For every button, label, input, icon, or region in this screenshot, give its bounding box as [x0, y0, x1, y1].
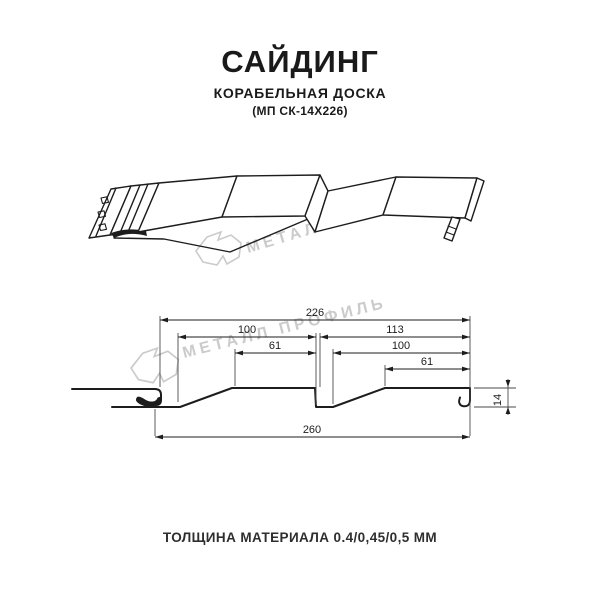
dim-pitch-right: 113	[386, 324, 404, 336]
material-thickness-note: ТОЛЩИНА МАТЕРИАЛА 0.4/0,45/0,5 ММ	[0, 530, 600, 545]
extension-lines	[155, 316, 516, 436]
dim-flat-right-pitch: 100	[392, 340, 410, 352]
brand-watermark-lower: МЕТАЛЛ ПРОФИЛЬ	[131, 295, 388, 383]
metal-profil-logo-icon	[131, 348, 178, 383]
technical-drawing: МЕТАЛЛ ПРОФИЛЬ МЕТАЛЛ ПРОФИЛЬ	[0, 0, 600, 600]
dim-flat-left: 61	[269, 340, 281, 352]
metal-profil-logo-icon	[196, 232, 241, 265]
dim-flat-right: 61	[421, 356, 433, 368]
cross-section-profile	[72, 388, 470, 407]
dim-pitch-left: 100	[238, 324, 256, 336]
dim-overall-bottom: 260	[303, 424, 321, 436]
watermark-text: МЕТАЛЛ ПРОФИЛЬ	[181, 295, 389, 362]
product-datasheet: САЙДИНГ КОРАБЕЛЬНАЯ ДОСКА (МП СК-14Х226)…	[0, 0, 600, 600]
dim-overall-top: 226	[306, 307, 324, 319]
dim-depth: 14	[492, 394, 504, 406]
